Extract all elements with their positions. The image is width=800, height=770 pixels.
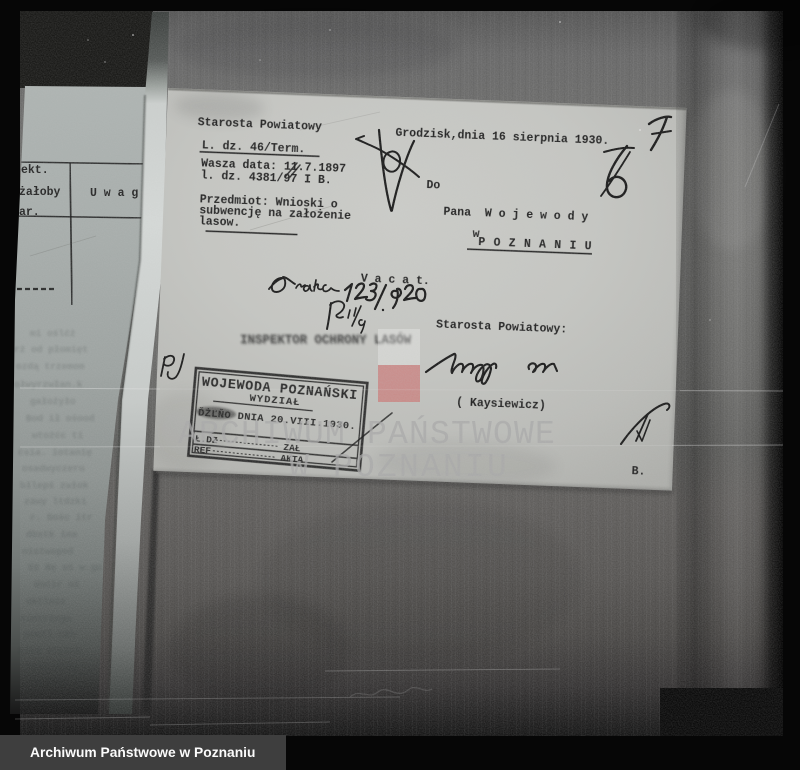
svg-text:Archiwum Państwowe w Poznaniu: Archiwum Państwowe w Poznaniu — [30, 745, 255, 760]
